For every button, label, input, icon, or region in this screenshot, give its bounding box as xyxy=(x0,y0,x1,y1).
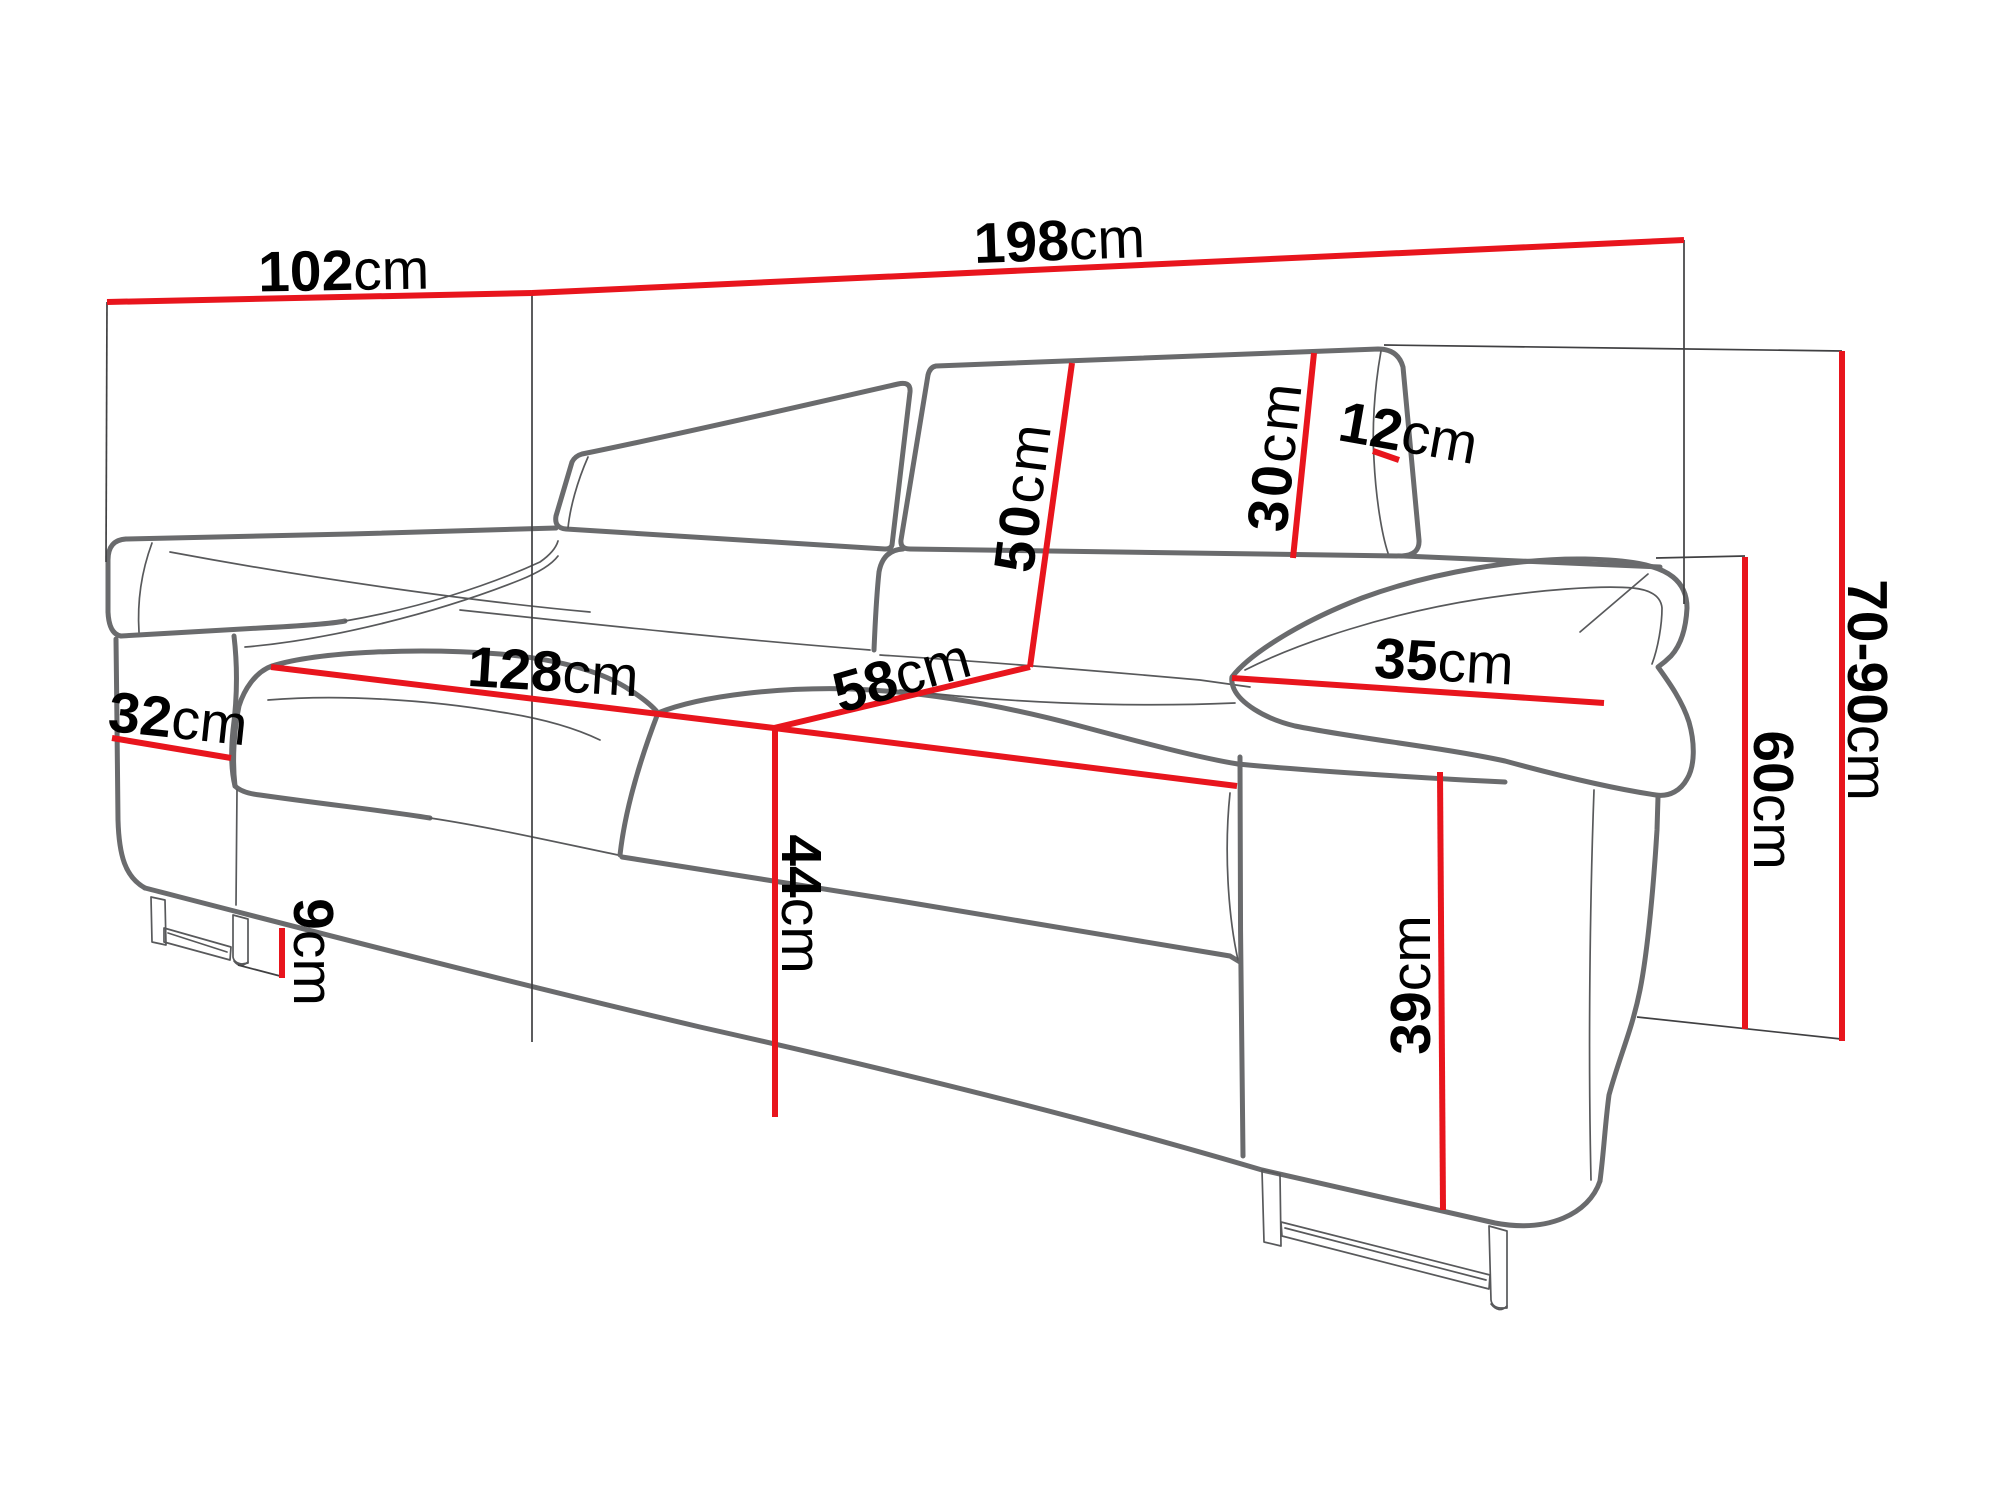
svg-text:102cm: 102cm xyxy=(258,238,430,305)
svg-text:70-90cm: 70-90cm xyxy=(1835,579,1899,801)
svg-text:44cm: 44cm xyxy=(769,834,833,973)
svg-text:35cm: 35cm xyxy=(1373,626,1516,697)
svg-text:128cm: 128cm xyxy=(466,635,641,709)
svg-text:60cm: 60cm xyxy=(1741,730,1805,869)
svg-text:9cm: 9cm xyxy=(281,898,345,1006)
svg-text:198cm: 198cm xyxy=(973,206,1146,276)
svg-text:39cm: 39cm xyxy=(1379,915,1443,1054)
